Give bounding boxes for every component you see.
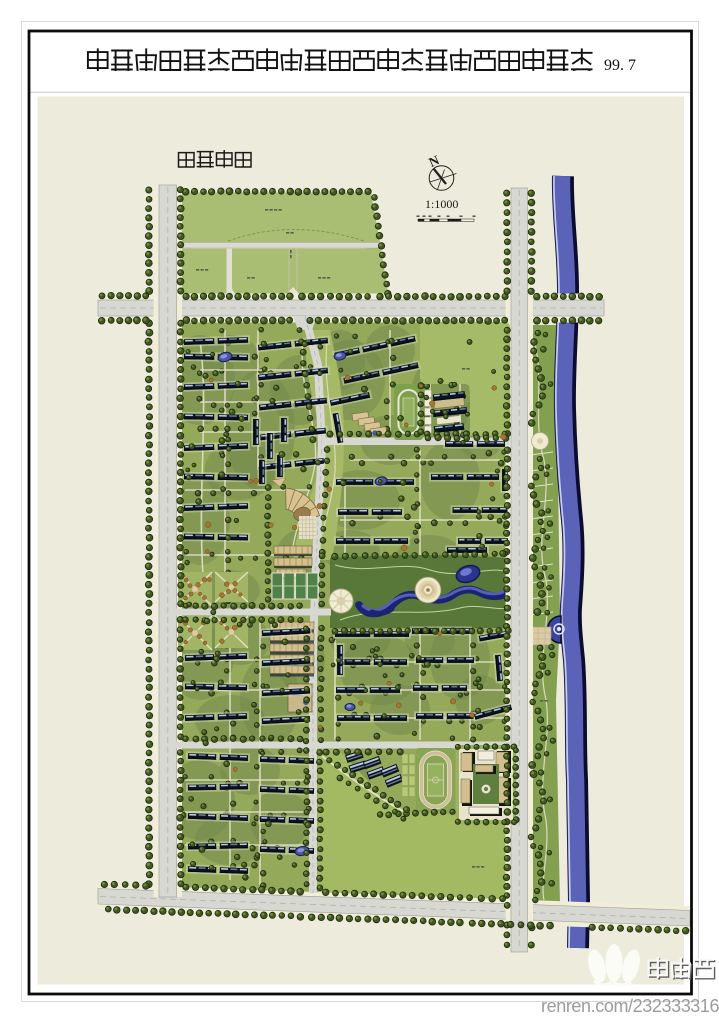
svg-text:99. 7: 99. 7 — [604, 57, 636, 74]
svg-text:1:1000: 1:1000 — [425, 197, 458, 211]
svg-text:renren.com/232333316: renren.com/232333316 — [541, 996, 719, 1016]
